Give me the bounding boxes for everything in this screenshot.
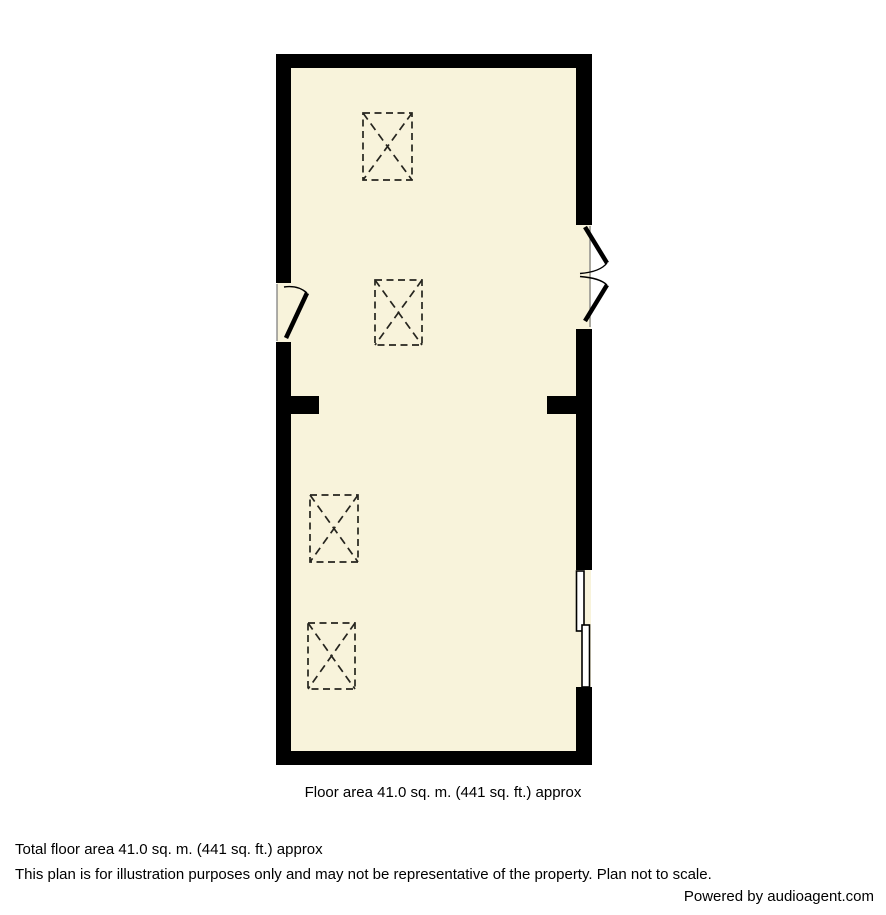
sliding-panel-outer bbox=[582, 625, 590, 687]
sliding-panel-inner bbox=[577, 571, 585, 631]
wall-left-lower bbox=[276, 342, 291, 765]
wall-top bbox=[276, 54, 592, 68]
total-floor-area-text: Total floor area 41.0 sq. m. (441 sq. ft… bbox=[15, 841, 323, 858]
wall-stub-left bbox=[290, 396, 319, 414]
room-floor bbox=[277, 55, 591, 764]
wall-left-upper bbox=[276, 54, 291, 283]
wall-right-upper bbox=[576, 54, 592, 225]
wall-stub-right bbox=[547, 396, 576, 414]
powered-by-text: Powered by audioagent.com bbox=[684, 888, 874, 905]
wall-right-middle bbox=[576, 329, 592, 570]
floor-area-caption: Floor area 41.0 sq. m. (441 sq. ft.) app… bbox=[0, 784, 886, 801]
wall-right-lower bbox=[576, 687, 592, 765]
floor-plan-drawing bbox=[0, 0, 886, 915]
wall-bottom bbox=[276, 751, 592, 765]
floorplan-page: Floor area 41.0 sq. m. (441 sq. ft.) app… bbox=[0, 0, 886, 915]
disclaimer-text: This plan is for illustration purposes o… bbox=[15, 866, 712, 883]
